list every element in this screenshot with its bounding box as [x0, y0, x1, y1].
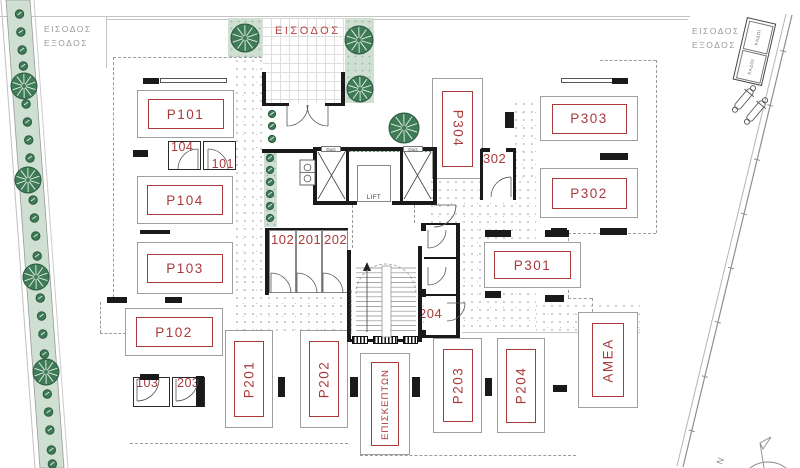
bush-icon: [47, 446, 55, 454]
column: [551, 228, 567, 234]
parking-label: ΕΠΙΣΚΕΠΤΩΝ: [380, 369, 391, 440]
parking-label: P101: [167, 107, 205, 122]
room-label-204: 204: [419, 306, 442, 321]
bush-icon: [18, 46, 26, 54]
parking-space-p302: P302: [540, 168, 638, 218]
storage-room-202: 202: [322, 230, 348, 293]
parking-space-p102: P102: [125, 308, 223, 356]
compass-north-label: N: [714, 456, 726, 466]
wall: [481, 148, 490, 152]
setback-line: [568, 298, 592, 299]
setback-line: [414, 205, 415, 223]
bush-icon: [48, 460, 56, 468]
column: [612, 78, 628, 84]
bush-icon: [19, 62, 27, 70]
column: [545, 295, 564, 302]
parking-label: P301: [514, 258, 552, 273]
setback-line: [113, 57, 114, 302]
column: [485, 291, 501, 298]
bush-icon: [29, 196, 37, 204]
column: [421, 289, 426, 297]
room-label: 202: [324, 232, 347, 247]
bush-icon: [30, 214, 38, 222]
column: [140, 230, 170, 234]
setback-line: [113, 57, 262, 58]
setback-line: [592, 298, 593, 312]
bush-icon: [36, 294, 44, 302]
setback-line: [130, 443, 348, 444]
street-label-top-left: ΕΙΣΟΔΟΣ ΕΞΟΔΟΣ: [44, 22, 92, 51]
parking-space-p304: P304: [432, 78, 483, 179]
storage-room-101: 101: [203, 141, 236, 170]
louvre-window: [403, 336, 418, 344]
storage-room-102: 102: [269, 230, 296, 293]
street-label-top-right: ΕΙΣΟΔΟΣ ΕΞΟΔΟΣ: [692, 24, 740, 53]
bush-icon: [39, 330, 47, 338]
plot-boundary-left-top: [106, 16, 107, 68]
duct-label: Duct: [321, 146, 341, 152]
parking-label: P102: [155, 325, 193, 340]
wall: [513, 149, 516, 200]
wall: [400, 147, 403, 205]
wall: [456, 223, 460, 337]
parking-label: P302: [570, 186, 608, 201]
parking-space-p301: P301: [484, 242, 581, 288]
parking-label: P202: [317, 360, 332, 398]
column: [600, 153, 628, 160]
wall: [346, 147, 349, 205]
parking-space-p202: P202: [300, 330, 348, 428]
parking-label: P304: [450, 110, 465, 148]
stair-room: [348, 248, 422, 340]
compass-icon: [738, 462, 798, 468]
bush-icon: [17, 28, 25, 36]
louvre-window: [352, 336, 368, 344]
planter: [345, 18, 374, 109]
parking-label: P204: [514, 367, 529, 405]
louvre-window: [373, 336, 398, 344]
storage-room-103: 103: [133, 377, 170, 407]
street-exit-text: ΕΞΟΔΟΣ: [692, 38, 740, 52]
column: [485, 378, 492, 396]
parking-space-p303: P303: [540, 96, 638, 141]
parking-space-p203: P203: [433, 338, 482, 433]
planter: [228, 18, 262, 57]
parking-label: P103: [166, 261, 204, 276]
room-label: 104: [171, 140, 193, 154]
street-entry-text: ΕΙΣΟΔΟΣ: [692, 24, 740, 38]
column: [485, 230, 511, 237]
bush-icon: [43, 390, 51, 398]
driveway: [233, 57, 263, 303]
parking-space-p104: P104: [137, 176, 233, 224]
column: [350, 377, 358, 397]
plot-boundary-top: [0, 16, 690, 17]
planter: [264, 151, 277, 227]
tree-icon: [15, 167, 41, 193]
bush-icon: [25, 136, 33, 144]
motorcycle-icon: [741, 94, 772, 127]
setback-line: [352, 205, 353, 248]
wall: [262, 103, 289, 106]
wall: [347, 250, 351, 342]
corridor: [346, 205, 428, 250]
wall: [424, 257, 456, 259]
wall: [325, 103, 345, 106]
bush-icon: [32, 232, 40, 240]
parking-label: AMEA: [601, 338, 616, 382]
bush-icon: [44, 408, 52, 416]
boundary-wall: [561, 78, 613, 83]
wall: [262, 149, 315, 153]
room-label: 101: [212, 157, 234, 171]
setback-line: [656, 60, 657, 233]
boundary-wall: [160, 78, 227, 83]
column: [421, 223, 426, 231]
motorcycle-icon: [729, 82, 760, 115]
floor-plan: ΕΙΣΟΔΟΣ ΕΞΟΔΟΣ ΕΙΣΟΔΟΣ ΕΞΟΔΟΣ ΕΙΣΟΔΟΣ P1…: [0, 0, 800, 468]
bin-icon: ΚΑΔΟΙ: [743, 21, 774, 55]
bush-icon: [22, 100, 30, 108]
setback-line: [360, 455, 576, 456]
room-label: 201: [298, 232, 321, 247]
lobby: [262, 103, 434, 150]
parking-space-p101: P101: [137, 90, 234, 138]
column: [165, 297, 182, 303]
wall: [313, 147, 317, 205]
column: [412, 377, 420, 397]
bush-icon: [37, 312, 45, 320]
wall: [341, 72, 345, 105]
storage-room-201: 201: [296, 230, 322, 293]
room-label: 102: [271, 232, 294, 247]
lift-cab: LIFT: [357, 165, 391, 202]
parking-space-p204: P204: [497, 338, 545, 433]
setback-line: [100, 333, 126, 334]
parking-space-p103: P103: [137, 242, 233, 294]
setback-line: [600, 60, 656, 61]
tree-icon: [23, 264, 49, 290]
storage-room-104: 104: [168, 141, 201, 170]
column: [278, 377, 285, 397]
setback-line: [100, 302, 101, 333]
column: [107, 297, 127, 303]
wall: [433, 147, 437, 205]
building-entrance-label: ΕΙΣΟΔΟΣ: [275, 25, 341, 37]
bush-icon: [26, 154, 34, 162]
column: [421, 330, 426, 338]
wall: [313, 201, 357, 205]
wall: [424, 335, 460, 338]
wall: [506, 148, 516, 152]
parking-space-visitors: ΕΠΙΣΚΕΠΤΩΝ: [360, 353, 410, 455]
wall: [424, 294, 456, 296]
column: [133, 150, 148, 157]
parking-label: P203: [450, 367, 465, 405]
bush-icon: [40, 350, 48, 358]
bin-label: ΚΑΔΟΙ: [754, 29, 763, 46]
street-exit-text: ΕΞΟΔΟΣ: [44, 36, 92, 50]
column: [140, 374, 159, 380]
duct-label: Duct: [403, 146, 423, 152]
wall: [424, 223, 458, 225]
wall: [262, 72, 266, 105]
wall: [392, 201, 437, 205]
bush-icon: [33, 252, 41, 260]
column: [143, 78, 159, 84]
column: [553, 385, 567, 392]
street-entry-text: ΕΙΣΟΔΟΣ: [44, 22, 92, 36]
wall: [505, 112, 514, 128]
parking-space-p201: P201: [225, 330, 273, 428]
parking-label: P303: [570, 111, 608, 126]
bush-icon: [46, 426, 54, 434]
bin-icon: ΚΑΔΟΙ: [736, 50, 767, 84]
wall: [480, 149, 483, 200]
room-label-302: 302: [483, 151, 506, 166]
bin-label: ΚΑΔΟΙ: [747, 58, 756, 75]
parking-space-amea: AMEA: [578, 312, 638, 408]
column: [600, 228, 627, 235]
bush-icon: [23, 118, 31, 126]
column: [196, 376, 204, 407]
parking-label: P104: [166, 193, 204, 208]
tree-icon: [33, 359, 59, 385]
parking-label: P201: [242, 360, 257, 398]
plot-boundary-top-inner: [106, 19, 688, 20]
tree-icon: [11, 73, 37, 99]
